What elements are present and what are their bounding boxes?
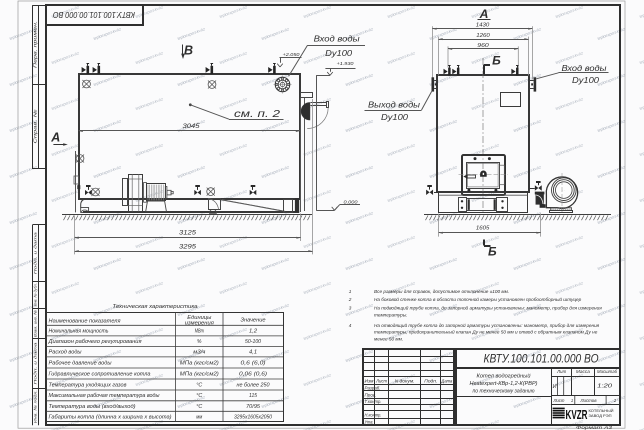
svg-text:менее 50 мм.: менее 50 мм. bbox=[374, 336, 403, 341]
svg-text:Масштаб: Масштаб bbox=[597, 369, 618, 374]
svg-text:Листов: Листов bbox=[579, 398, 597, 403]
svg-text:Температура воды (вход/выход): Температура воды (вход/выход) bbox=[49, 404, 136, 410]
svg-text:см. п. 2: см. п. 2 bbox=[234, 109, 281, 120]
svg-text:115: 115 bbox=[249, 393, 257, 399]
svg-text:На отводящий трубе котла до за: На отводящий трубе котла до запорной арм… bbox=[374, 322, 600, 328]
svg-text:В: В bbox=[184, 44, 193, 58]
svg-text:м3/ч: м3/ч bbox=[193, 350, 205, 356]
svg-text:Heatexpert-КВр-1,2-К(РВР): Heatexpert-КВр-1,2-К(РВР) bbox=[470, 381, 538, 387]
svg-text:Т.контр.: Т.контр. bbox=[365, 399, 382, 404]
svg-text:4,1: 4,1 bbox=[249, 350, 257, 356]
svg-text:Дата: Дата bbox=[440, 379, 453, 384]
svg-text:Dy100: Dy100 bbox=[325, 49, 353, 58]
svg-text:Рабочее давление воды: Рабочее давление воды bbox=[49, 360, 112, 366]
svg-text:Инв. № дубл.: Инв. № дубл. bbox=[32, 283, 37, 306]
svg-text:Справ. №: Справ. № bbox=[33, 109, 38, 144]
svg-text:Температура уходящих газов: Температура уходящих газов bbox=[49, 382, 127, 388]
svg-text:%: % bbox=[197, 339, 202, 345]
svg-text:А: А bbox=[50, 131, 60, 145]
svg-text:1260: 1260 bbox=[476, 33, 490, 39]
svg-text:3125: 3125 bbox=[179, 229, 197, 236]
svg-text:1430: 1430 bbox=[476, 23, 490, 29]
svg-text:На подводящий трубе котла, до: На подводящий трубе котла, до запорной а… bbox=[374, 305, 602, 311]
svg-text:0.000: 0.000 bbox=[344, 199, 359, 204]
svg-text:°С: °С bbox=[196, 393, 202, 399]
svg-text:Б: Б bbox=[488, 244, 497, 258]
svg-text:Гидравлическое сопротивление к: Гидравлическое сопротивление котла bbox=[49, 371, 151, 377]
svg-text:1: 1 bbox=[349, 289, 352, 294]
svg-text:3045: 3045 bbox=[183, 123, 201, 130]
svg-text:Dy100: Dy100 bbox=[572, 76, 600, 85]
svg-text:И: И bbox=[553, 384, 557, 390]
svg-text:3295: 3295 bbox=[179, 243, 197, 250]
svg-text:4: 4 bbox=[349, 323, 352, 328]
svg-text:Лист: Лист bbox=[375, 379, 388, 384]
svg-text:Пров.: Пров. bbox=[365, 392, 377, 397]
svg-text:КОТЕЛЬНЫЙ: КОТЕЛЬНЫЙ bbox=[589, 409, 615, 413]
svg-text:2: 2 bbox=[348, 297, 352, 302]
svg-text:3295х1605х2050: 3295х1605х2050 bbox=[234, 414, 272, 420]
svg-text:Подп. и дата: Подп. и дата bbox=[32, 231, 37, 274]
svg-text:N докум.: N докум. bbox=[395, 379, 415, 384]
svg-text:измерения: измерения bbox=[185, 320, 214, 326]
svg-text:1,2: 1,2 bbox=[249, 328, 257, 334]
svg-text:Формат А3: Формат А3 bbox=[576, 425, 613, 430]
svg-text:мм: мм bbox=[196, 414, 202, 420]
svg-text:0,6 (6,0): 0,6 (6,0) bbox=[241, 360, 266, 366]
svg-text:+1.930: +1.930 bbox=[337, 61, 355, 66]
svg-text:Dy100: Dy100 bbox=[381, 113, 409, 122]
svg-text:Вход воды: Вход воды bbox=[314, 35, 360, 44]
svg-text:Взам. инв. №: Взам. инв. № bbox=[32, 309, 37, 337]
svg-text:Подп. и дата: Подп. и дата bbox=[32, 341, 37, 384]
svg-text:KVZR: KVZR bbox=[566, 407, 588, 422]
svg-text:70/95: 70/95 bbox=[246, 404, 260, 410]
svg-text:Котел водогрейный: Котел водогрейный bbox=[477, 372, 531, 379]
svg-text:Перв. примен.: Перв. примен. bbox=[33, 21, 38, 68]
svg-text:960: 960 bbox=[477, 43, 490, 49]
svg-text:· ·: · · bbox=[562, 188, 565, 192]
svg-text:1: 1 bbox=[571, 398, 573, 403]
svg-text:Расход воды: Расход воды bbox=[49, 350, 82, 356]
svg-text:Лист: Лист bbox=[552, 398, 565, 403]
svg-text:КВТУ.100.101.00.000 ВО: КВТУ.100.101.00.000 ВО bbox=[53, 10, 135, 19]
svg-text:Техническая характеристика: Техническая характеристика bbox=[113, 304, 198, 310]
svg-text:Разраб.: Разраб. bbox=[365, 386, 381, 391]
svg-text:Максимальная рабочая температу: Максимальная рабочая температура воды bbox=[49, 393, 160, 399]
svg-text:МПа (кгс/см2): МПа (кгс/см2) bbox=[180, 371, 219, 377]
svg-text:1605: 1605 bbox=[476, 226, 490, 232]
svg-text:Наименование показателя: Наименование показателя bbox=[49, 319, 121, 325]
svg-text:Утв.: Утв. bbox=[365, 419, 374, 424]
svg-text:Подп.: Подп. bbox=[424, 379, 437, 384]
svg-text:Н.контр.: Н.контр. bbox=[365, 412, 382, 417]
svg-text:Номинальная мощность: Номинальная мощность bbox=[49, 328, 109, 334]
svg-text:по техническому заданию: по техническому заданию bbox=[473, 389, 536, 395]
svg-text:Масса: Масса bbox=[576, 369, 591, 374]
svg-text:Все размеры для справок, допус: Все размеры для справок, допустимое откл… bbox=[374, 289, 509, 294]
svg-text:+2.050: +2.050 bbox=[283, 52, 301, 57]
svg-text:Лит: Лит bbox=[556, 369, 566, 374]
svg-text:Габариты котла (длинна х ширин: Габариты котла (длинна х ширина х высота… bbox=[49, 414, 172, 420]
svg-text:МВт: МВт bbox=[195, 328, 204, 334]
svg-text:На боковой стенке котла в обла: На боковой стенке котла в области топочн… bbox=[374, 296, 582, 302]
svg-text:Вход воды: Вход воды bbox=[562, 64, 607, 73]
svg-text:50-100: 50-100 bbox=[245, 339, 261, 345]
svg-text:°С: °С bbox=[196, 382, 202, 388]
svg-text:°С: °С bbox=[196, 404, 202, 410]
svg-text:Значение: Значение bbox=[241, 318, 266, 324]
svg-text:1:20: 1:20 bbox=[597, 384, 613, 390]
svg-text:Инв. № подл.: Инв. № подл. bbox=[32, 390, 37, 423]
svg-text:3: 3 bbox=[349, 306, 352, 311]
svg-text:Б: Б bbox=[492, 53, 501, 67]
svg-text:0,06 (0,6): 0,06 (0,6) bbox=[239, 371, 267, 377]
svg-text:не более 250: не более 250 bbox=[237, 382, 270, 388]
svg-text:ЗАВОД РЭП: ЗАВОД РЭП bbox=[589, 414, 613, 418]
svg-text:Диапазон рабочего регулировани: Диапазон рабочего регулирования bbox=[47, 339, 142, 345]
svg-text:А: А bbox=[479, 7, 489, 21]
svg-text:Выход воды: Выход воды bbox=[368, 101, 420, 110]
svg-text:Изм: Изм bbox=[365, 379, 374, 384]
svg-text:КВТУ.100.101.00.000 ВО: КВТУ.100.101.00.000 ВО bbox=[484, 351, 599, 365]
svg-text:температуры.: температуры. bbox=[374, 312, 408, 317]
svg-text:МПа (кгс/см2): МПа (кгс/см2) bbox=[180, 360, 219, 366]
svg-text:температуры, предохранительный: температуры, предохранительный клапан Ду… bbox=[374, 329, 598, 335]
